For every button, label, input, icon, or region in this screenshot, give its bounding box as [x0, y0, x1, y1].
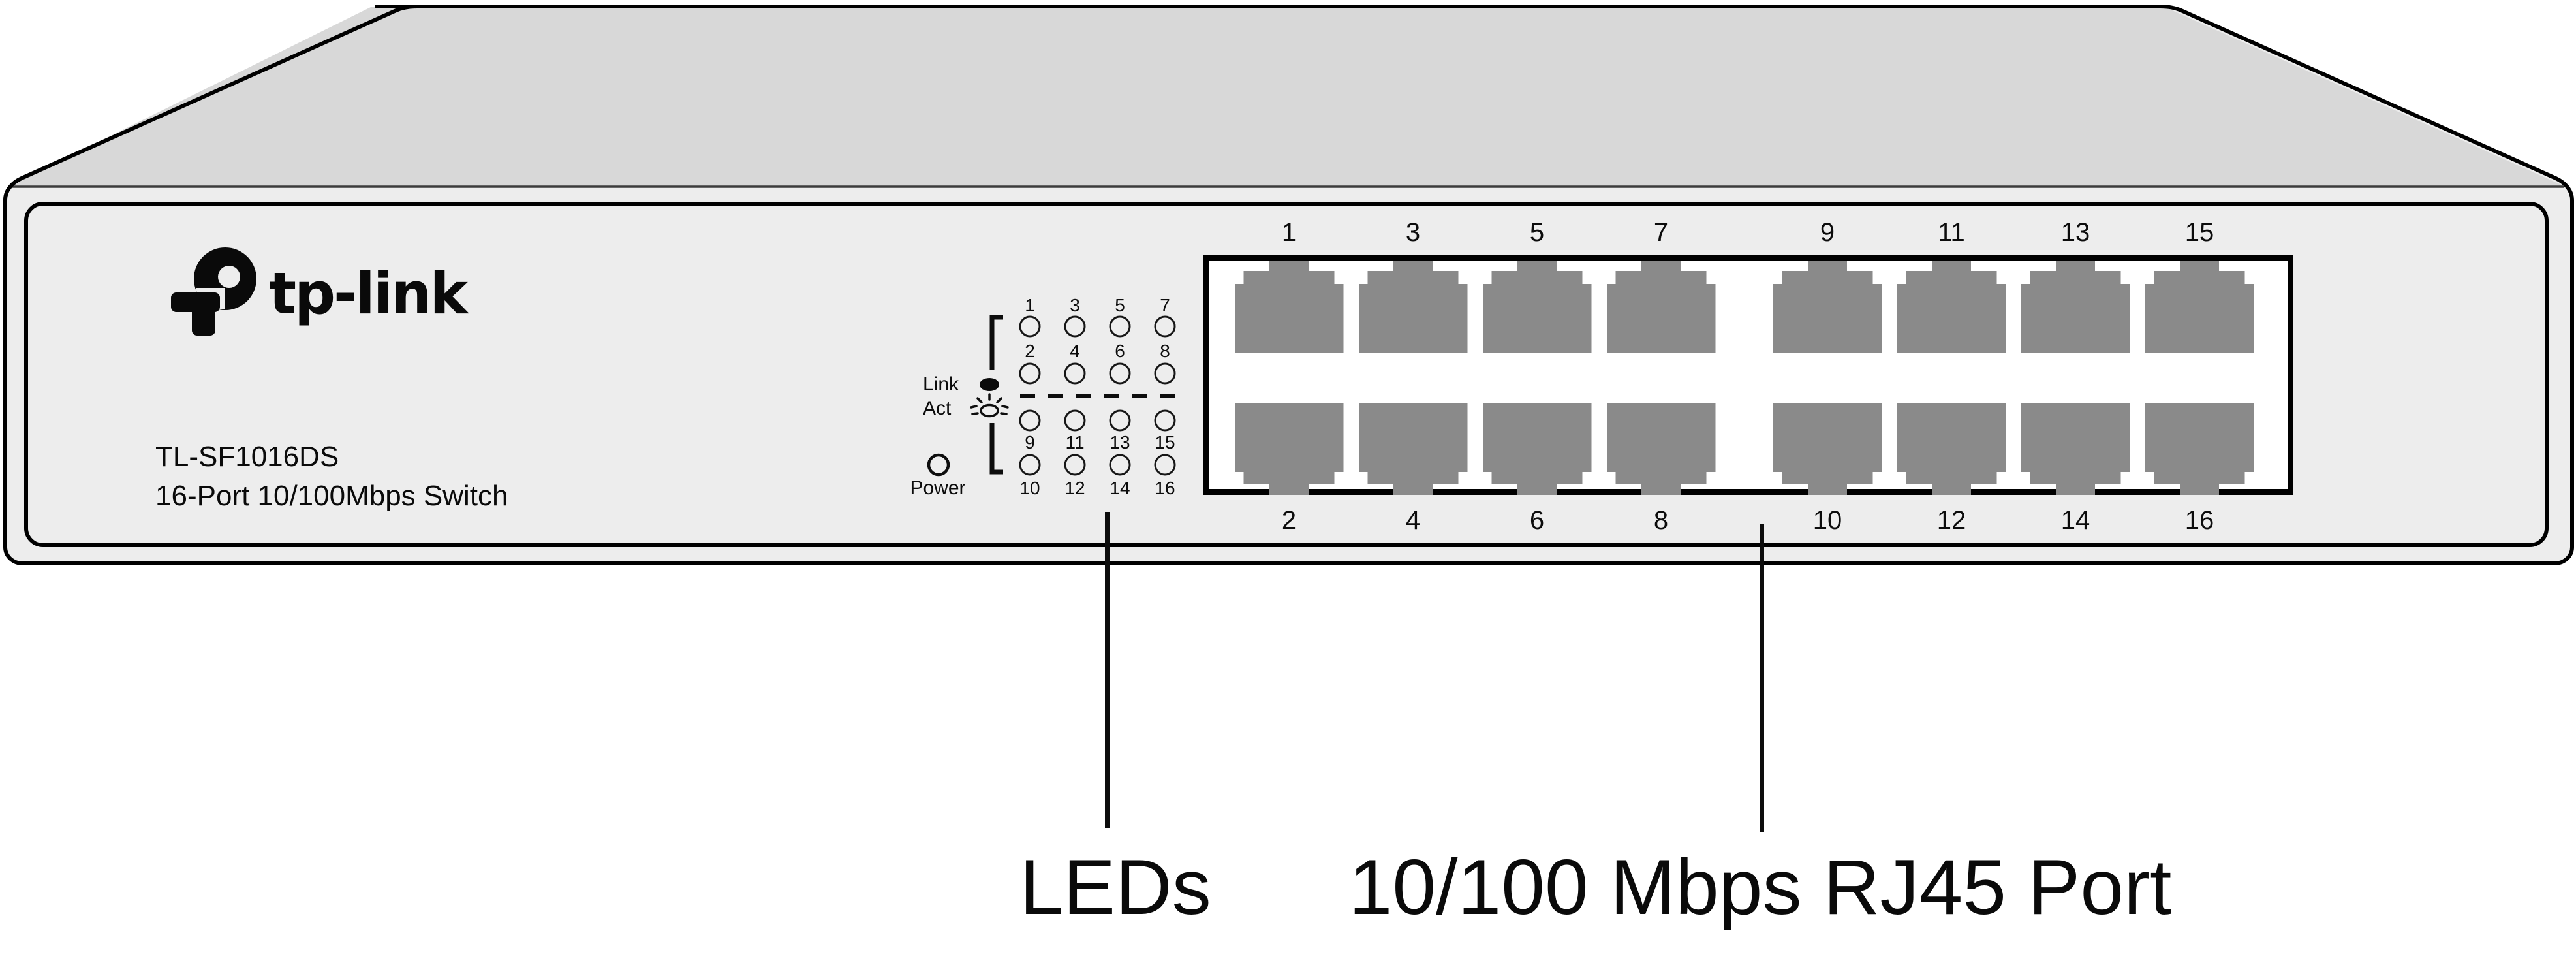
led-indicator-11 [1064, 410, 1086, 432]
port-number-7: 7 [1654, 219, 1668, 245]
switch-top-face [9, 7, 2564, 186]
port-number-2: 2 [1282, 507, 1296, 533]
led-number-11: 11 [1065, 434, 1084, 452]
led-indicator-15 [1155, 410, 1176, 432]
led-number-7: 7 [1160, 296, 1170, 315]
led-number-14: 14 [1110, 479, 1130, 498]
link-led-dot [980, 378, 999, 391]
rj45-port-10 [1773, 403, 1882, 495]
rj45-callout-label: 10/100 Mbps RJ45 Port [1349, 847, 2172, 928]
rj45-port-5 [1483, 261, 1592, 353]
led-number-10: 10 [1019, 479, 1040, 498]
port-number-6: 6 [1530, 507, 1544, 533]
led-indicator-3 [1064, 316, 1086, 338]
led-indicator-1 [1019, 316, 1041, 338]
rj45-port-6 [1483, 403, 1592, 495]
rj45-port-1 [1235, 261, 1344, 353]
led-indicator-7 [1155, 316, 1176, 338]
rj45-port-3 [1359, 261, 1468, 353]
power-label: Power [910, 479, 965, 498]
switch-front-panel-diagram: tp-link TL-SF1016DS [0, 0, 2576, 980]
port-number-15: 15 [2185, 219, 2214, 245]
port-number-3: 3 [1406, 219, 1420, 245]
led-indicator-4 [1064, 363, 1086, 385]
led-indicator-5 [1110, 316, 1131, 338]
led-indicator-8 [1155, 363, 1176, 385]
rj45-callout-line [1760, 524, 1764, 832]
tp-link-wordmark: tp-link [269, 260, 470, 327]
port-number-8: 8 [1654, 507, 1668, 533]
led-number-3: 3 [1070, 296, 1080, 315]
led-number-2: 2 [1025, 342, 1035, 360]
port-number-9: 9 [1820, 219, 1835, 245]
rj45-port-11 [1897, 261, 2006, 353]
rj45-port-7 [1607, 261, 1716, 353]
link-label: Link [923, 375, 959, 394]
rj45-port-9 [1773, 261, 1882, 353]
led-number-5: 5 [1115, 296, 1125, 315]
model-number: TL-SF1016DS [155, 442, 339, 472]
led-indicator-13 [1110, 410, 1131, 432]
led-indicator-10 [1019, 454, 1041, 476]
port-number-10: 10 [1813, 507, 1842, 533]
led-indicator-9 [1019, 410, 1041, 432]
port-number-14: 14 [2061, 507, 2090, 533]
model-description: 16-Port 10/100Mbps Switch [155, 481, 508, 511]
tp-link-logo-leg [192, 294, 215, 336]
rj45-port-2 [1235, 403, 1344, 495]
led-indicator-16 [1155, 454, 1176, 476]
led-number-12: 12 [1064, 479, 1085, 498]
led-indicator-12 [1064, 454, 1086, 476]
led-indicator-14 [1110, 454, 1131, 476]
port-number-16: 16 [2185, 507, 2214, 533]
leds-callout-label: LEDs [1019, 847, 1211, 928]
led-indicator-6 [1110, 363, 1131, 385]
led-number-4: 4 [1070, 342, 1080, 360]
rj45-port-15 [2145, 261, 2254, 353]
rj45-port-16 [2145, 403, 2254, 495]
port-number-13: 13 [2061, 219, 2090, 245]
led-number-1: 1 [1025, 296, 1035, 315]
rj45-port-14 [2021, 403, 2130, 495]
led-indicator-2 [1019, 363, 1041, 385]
rj45-port-8 [1607, 403, 1716, 495]
led-number-16: 16 [1155, 479, 1175, 498]
port-number-4: 4 [1406, 507, 1420, 533]
led-number-13: 13 [1110, 434, 1130, 452]
rj45-port-4 [1359, 403, 1468, 495]
rj45-port-13 [2021, 261, 2130, 353]
act-label: Act [923, 399, 951, 419]
port-number-12: 12 [1937, 507, 1966, 533]
leds-callout-line [1105, 512, 1110, 828]
port-number-11: 11 [1938, 219, 1965, 245]
port-number-1: 1 [1282, 219, 1296, 245]
port-number-5: 5 [1530, 219, 1544, 245]
led-number-15: 15 [1155, 434, 1175, 452]
led-number-9: 9 [1025, 434, 1035, 452]
led-number-8: 8 [1160, 342, 1170, 360]
rj45-port-12 [1897, 403, 2006, 495]
led-number-6: 6 [1115, 342, 1125, 360]
